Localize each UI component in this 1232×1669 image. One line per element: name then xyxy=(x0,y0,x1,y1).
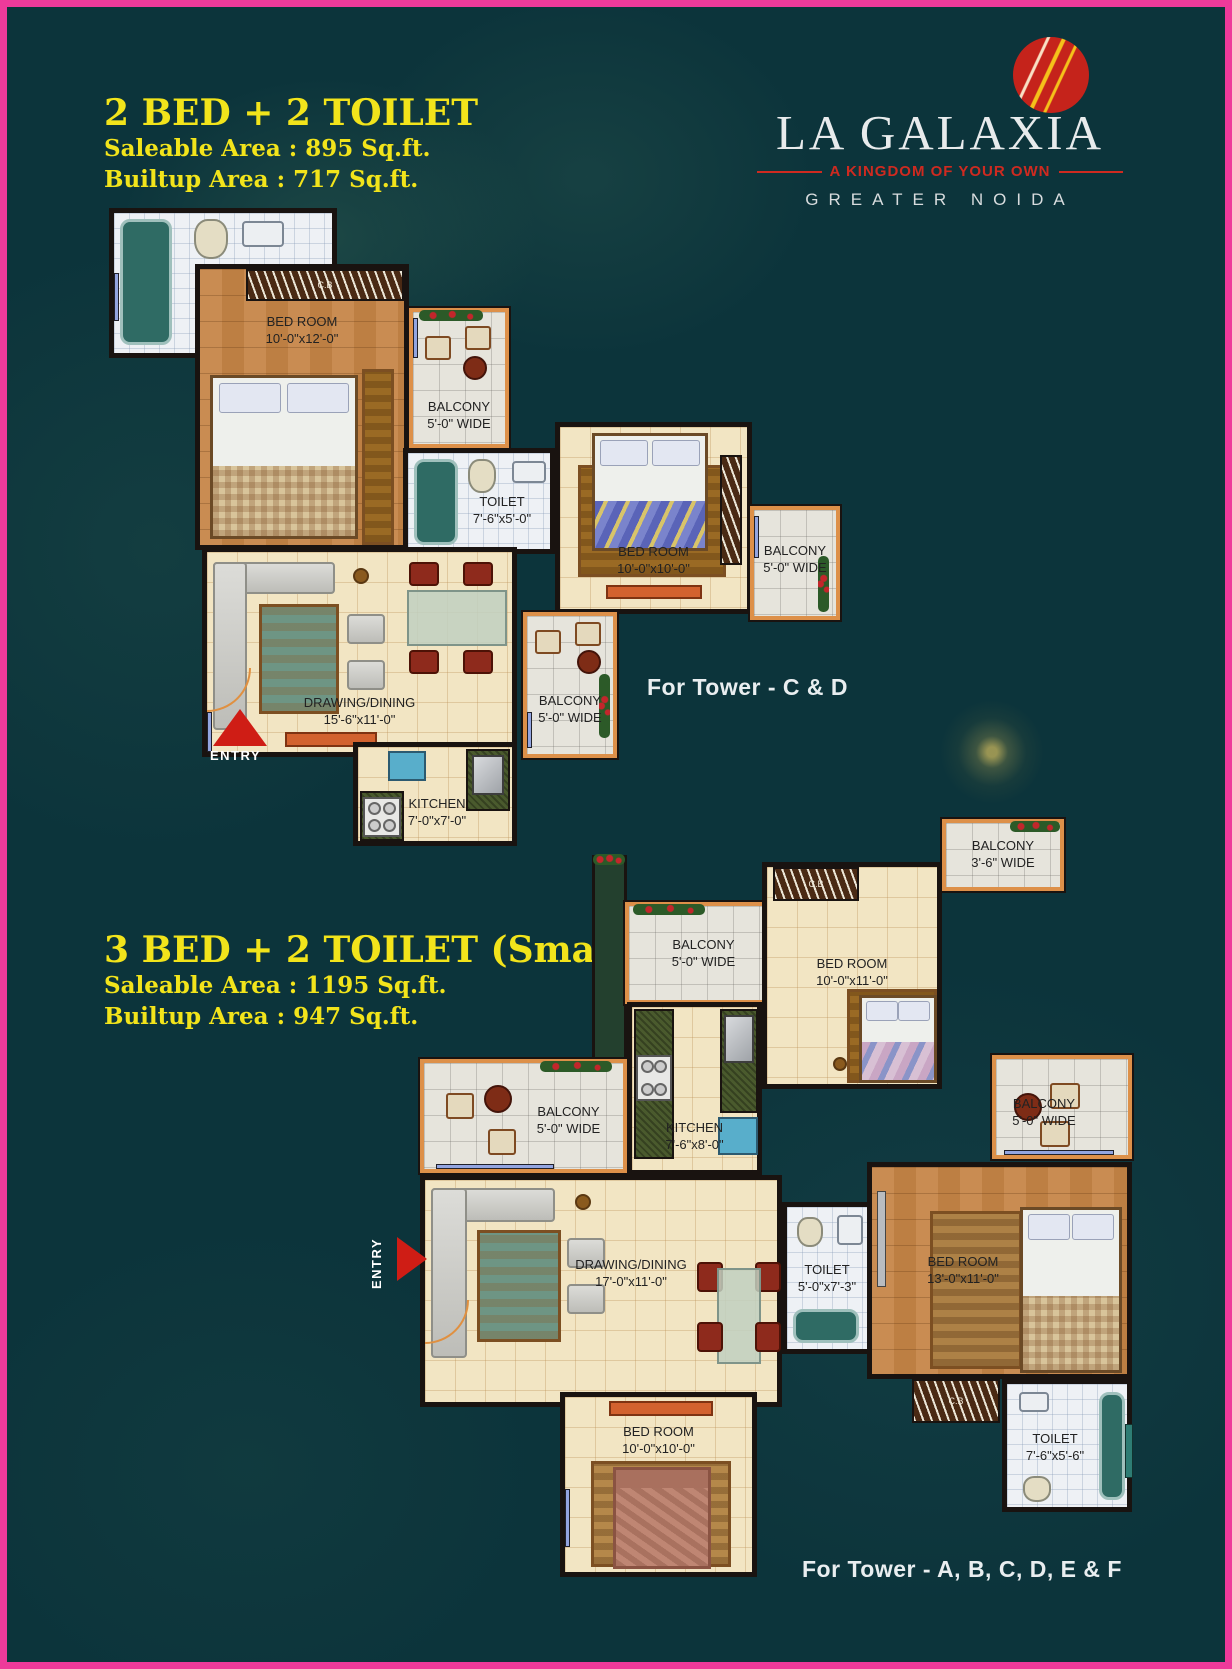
plan2-toilet-mid: TOILET 5'-0"x7'-3" xyxy=(782,1202,872,1354)
room-label: BED ROOM 10'-0"x10'-0" xyxy=(560,543,747,577)
dining-chair xyxy=(409,562,439,586)
cupboard: C.B xyxy=(912,1379,1000,1423)
pillow xyxy=(287,383,349,413)
burner xyxy=(654,1060,667,1073)
room-name: BALCONY xyxy=(996,1095,1092,1112)
burner xyxy=(654,1083,667,1096)
plan1-balcony-bottom: BALCONY 5'-0" WIDE xyxy=(523,612,617,758)
room-label: BED ROOM 10'-0"x11'-0" xyxy=(767,955,937,989)
room-dims: 5'-0" WIDE xyxy=(514,1120,623,1137)
room-dims: 17'-0"x11'-0" xyxy=(485,1273,777,1290)
room-dims: 5'-0"x7'-3" xyxy=(787,1278,867,1295)
flower-box xyxy=(419,310,483,321)
room-label: BALCONY 5'-0" WIDE xyxy=(629,936,778,970)
stove xyxy=(636,1055,672,1101)
room-dims: 13'-0"x11'-0" xyxy=(888,1270,1038,1287)
chimney xyxy=(472,755,504,795)
room-name: BED ROOM xyxy=(560,543,747,560)
double-bed xyxy=(210,375,358,539)
window xyxy=(1004,1150,1114,1155)
wash-basin xyxy=(837,1215,863,1245)
plan2-bedroom-bottom: BED ROOM 10'-0"x10'-0" xyxy=(560,1392,757,1577)
bathtub xyxy=(793,1309,859,1343)
window xyxy=(114,273,119,321)
door xyxy=(1125,1424,1133,1478)
room-name: BALCONY xyxy=(527,692,613,709)
service-shaft xyxy=(592,855,627,1061)
rug xyxy=(930,1211,1022,1369)
wash-basin xyxy=(242,221,284,247)
burner xyxy=(641,1060,654,1073)
balcony-chair xyxy=(465,326,491,350)
cupboard: C.B xyxy=(773,867,859,901)
dining-table xyxy=(407,590,507,646)
plan1-title: 2 BED + 2 TOILET xyxy=(104,93,478,133)
chimney xyxy=(724,1015,754,1063)
double-bed xyxy=(592,433,708,551)
plan2-balcony-left: BALCONY 5'-0" WIDE xyxy=(420,1059,627,1173)
plan2-drawing-dining: DRAWING/DINING 17'-0"x11'-0" xyxy=(420,1175,782,1407)
plan2-balcony-top: BALCONY 5'-0" WIDE xyxy=(625,902,782,1004)
pillow xyxy=(898,1001,930,1021)
room-label: TOILET 5'-0"x7'-3" xyxy=(787,1261,867,1295)
room-label: BED ROOM 10'-0"x12'-0" xyxy=(200,313,404,347)
entry-arrow xyxy=(397,1237,427,1281)
room-label: BALCONY 5'-0" WIDE xyxy=(514,1103,623,1137)
room-dims: 7'-6"x5'-6" xyxy=(1007,1447,1103,1464)
dining-chair xyxy=(463,562,493,586)
armchair xyxy=(347,614,385,644)
toilet-seat xyxy=(797,1217,823,1247)
armchair xyxy=(347,660,385,690)
room-dims: 5'-0" WIDE xyxy=(996,1112,1092,1129)
plan2-kitchen: KITCHEN 7'-6"x8'-0" xyxy=(627,1002,762,1175)
room-dims: 7'-6"x5'-0" xyxy=(454,510,550,527)
room-label: BALCONY 5'-0" WIDE xyxy=(527,692,613,726)
entry-arrow xyxy=(213,709,267,746)
lamp xyxy=(353,568,369,584)
room-dims: 5'-0" WIDE xyxy=(527,709,613,726)
room-label: TOILET 7'-6"x5'-0" xyxy=(454,493,550,527)
brand-tagline: A KINGDOM OF YOUR OWN xyxy=(830,163,1051,180)
plan2-balcony-right: BALCONY 5'-0" WIDE xyxy=(992,1055,1132,1159)
plan1-saleable-area: Saleable Area : 895 Sq.ft. xyxy=(104,133,478,164)
cupboard-label: C.B xyxy=(948,1396,963,1406)
round-table xyxy=(484,1085,512,1113)
plan1-balcony-mid: BALCONY 5'-0" WIDE xyxy=(409,308,509,448)
room-name: BALCONY xyxy=(629,936,778,953)
pillow xyxy=(1072,1214,1114,1240)
room-name: TOILET xyxy=(1007,1430,1103,1447)
round-table xyxy=(577,650,601,674)
plan1-toilet-mid: TOILET 7'-6"x5'-0" xyxy=(403,448,555,554)
dining-chair xyxy=(755,1322,781,1352)
tv-console xyxy=(606,585,702,599)
pillow xyxy=(600,440,648,466)
room-name: BED ROOM xyxy=(767,955,937,972)
window xyxy=(565,1489,570,1547)
flower-box xyxy=(593,854,625,865)
room-name: BALCONY xyxy=(754,542,836,559)
plan2-tower-text: For Tower - A, B, C, D, E & F xyxy=(802,1556,1122,1583)
balcony-chair xyxy=(425,336,451,360)
floor-plan-3bed: BALCONY 5'-0" WIDE C.B BED ROOM 10'-0"x1… xyxy=(392,807,1132,1579)
plan1-balcony-right: BALCONY 5'-0" WIDE xyxy=(750,506,840,620)
blanket xyxy=(213,466,355,536)
room-name: BALCONY xyxy=(514,1103,623,1120)
plan2-toilet-bottom: TOILET 7'-6"x5'-6" xyxy=(1002,1379,1132,1512)
kitchen-sink xyxy=(388,751,426,781)
room-dims: 5'-0" WIDE xyxy=(754,559,836,576)
floor-plan-2bed: TOILET 7'-6"x5'-0" C.B BED ROOM 10'-0"x1… xyxy=(107,204,787,856)
plan2-balcony-small: BALCONY 3'-6" WIDE xyxy=(942,819,1064,891)
double-bed xyxy=(859,995,937,1083)
plan1-tower-text: For Tower - C & D xyxy=(647,674,848,701)
room-name: BED ROOM xyxy=(200,313,404,330)
room-label: BALCONY 5'-0" WIDE xyxy=(754,542,836,576)
room-label: DRAWING/DINING 17'-0"x11'-0" xyxy=(485,1256,777,1290)
room-label: KITCHEN 7'-6"x8'-0" xyxy=(632,1119,757,1153)
room-dims: 10'-0"x10'-0" xyxy=(560,560,747,577)
double-bed xyxy=(613,1467,711,1569)
toilet-seat xyxy=(468,459,496,493)
dining-chair xyxy=(409,650,439,674)
burner xyxy=(368,802,381,815)
plan1-builtup-area: Builtup Area : 717 Sq.ft. xyxy=(104,164,478,195)
brand-tagline-row: A KINGDOM OF YOUR OWN xyxy=(749,163,1131,180)
room-label: BED ROOM 10'-0"x10'-0" xyxy=(565,1423,752,1457)
balcony-chair xyxy=(446,1093,474,1119)
rug xyxy=(362,369,394,545)
cupboard: C.B xyxy=(246,269,404,301)
cupboard-label: C.B xyxy=(808,879,823,889)
blanket xyxy=(862,1042,934,1080)
flower-box xyxy=(633,904,705,915)
plan1-bedroom-second: BED ROOM 10'-0"x10'-0" xyxy=(555,422,752,614)
blanket xyxy=(595,501,705,548)
flower-box xyxy=(540,1061,612,1072)
room-name: TOILET xyxy=(454,493,550,510)
bathtub xyxy=(414,459,458,545)
burner xyxy=(368,819,381,832)
window xyxy=(436,1164,554,1169)
window xyxy=(413,318,418,358)
plan2-bedroom-top: C.B BED ROOM 10'-0"x11'-0" xyxy=(762,862,942,1089)
room-dims: 5'-0" WIDE xyxy=(413,415,505,432)
round-table xyxy=(463,356,487,380)
brochure-page: 2 BED + 2 TOILET Saleable Area : 895 Sq.… xyxy=(0,0,1232,1669)
tagline-rule-right xyxy=(1059,171,1124,173)
room-dims: 5'-0" WIDE xyxy=(629,953,778,970)
double-bed xyxy=(1020,1207,1122,1373)
pillow xyxy=(1028,1214,1070,1240)
room-dims: 10'-0"x11'-0" xyxy=(767,972,937,989)
room-name: BED ROOM xyxy=(888,1253,1038,1270)
room-label: BALCONY 5'-0" WIDE xyxy=(996,1095,1092,1129)
room-dims: 10'-0"x12'-0" xyxy=(200,330,404,347)
balcony-chair xyxy=(575,622,601,646)
room-label: BALCONY 3'-6" WIDE xyxy=(946,837,1060,871)
burner xyxy=(641,1083,654,1096)
brand-logo: LA GALAXIA A KINGDOM OF YOUR OWN GREATER… xyxy=(749,37,1131,210)
room-label: BALCONY 5'-0" WIDE xyxy=(413,398,505,432)
room-dims: 3'-6" WIDE xyxy=(946,854,1060,871)
room-name: BALCONY xyxy=(413,398,505,415)
pillow xyxy=(616,1470,708,1488)
wash-basin xyxy=(512,461,546,483)
lamp xyxy=(575,1194,591,1210)
pillow xyxy=(652,440,700,466)
balcony-chair xyxy=(488,1129,516,1155)
balcony-chair xyxy=(535,630,561,654)
pillow xyxy=(866,1001,898,1021)
room-name: BED ROOM xyxy=(565,1423,752,1440)
lamp xyxy=(833,1057,847,1071)
toilet-seat xyxy=(194,219,228,259)
brand-name: LA GALAXIA xyxy=(749,107,1131,159)
brand-location: GREATER NOIDA xyxy=(749,190,1131,210)
tagline-rule-left xyxy=(757,171,822,173)
room-label: BED ROOM 13'-0"x11'-0" xyxy=(888,1253,1038,1287)
room-dims: 7'-6"x8'-0" xyxy=(632,1136,757,1153)
tv-panel xyxy=(877,1191,886,1287)
room-label: TOILET 7'-6"x5'-6" xyxy=(1007,1430,1103,1464)
dining-chair xyxy=(463,650,493,674)
plan1-bedroom-main: C.B BED ROOM 10'-0"x12'-0" xyxy=(195,264,409,550)
room-dims: 10'-0"x10'-0" xyxy=(565,1440,752,1457)
tv-console xyxy=(609,1401,713,1416)
cupboard-label: C.B xyxy=(317,280,332,290)
entry-label: ENTRY xyxy=(210,748,261,763)
room-name: KITCHEN xyxy=(632,1119,757,1136)
entry-label: ENTRY xyxy=(369,1233,384,1289)
room-name: BALCONY xyxy=(946,837,1060,854)
room-name: TOILET xyxy=(787,1261,867,1278)
toilet-seat xyxy=(1023,1476,1051,1502)
room-name: DRAWING/DINING xyxy=(485,1256,777,1273)
flower-box xyxy=(1010,821,1060,832)
wash-basin xyxy=(1019,1392,1049,1412)
sun-logo-icon xyxy=(1013,37,1089,113)
blanket xyxy=(1023,1296,1119,1370)
plan2-bedroom-right: BED ROOM 13'-0"x11'-0" xyxy=(867,1162,1132,1379)
plan1-heading: 2 BED + 2 TOILET Saleable Area : 895 Sq.… xyxy=(104,93,478,195)
dining-chair xyxy=(697,1322,723,1352)
pillow xyxy=(219,383,281,413)
